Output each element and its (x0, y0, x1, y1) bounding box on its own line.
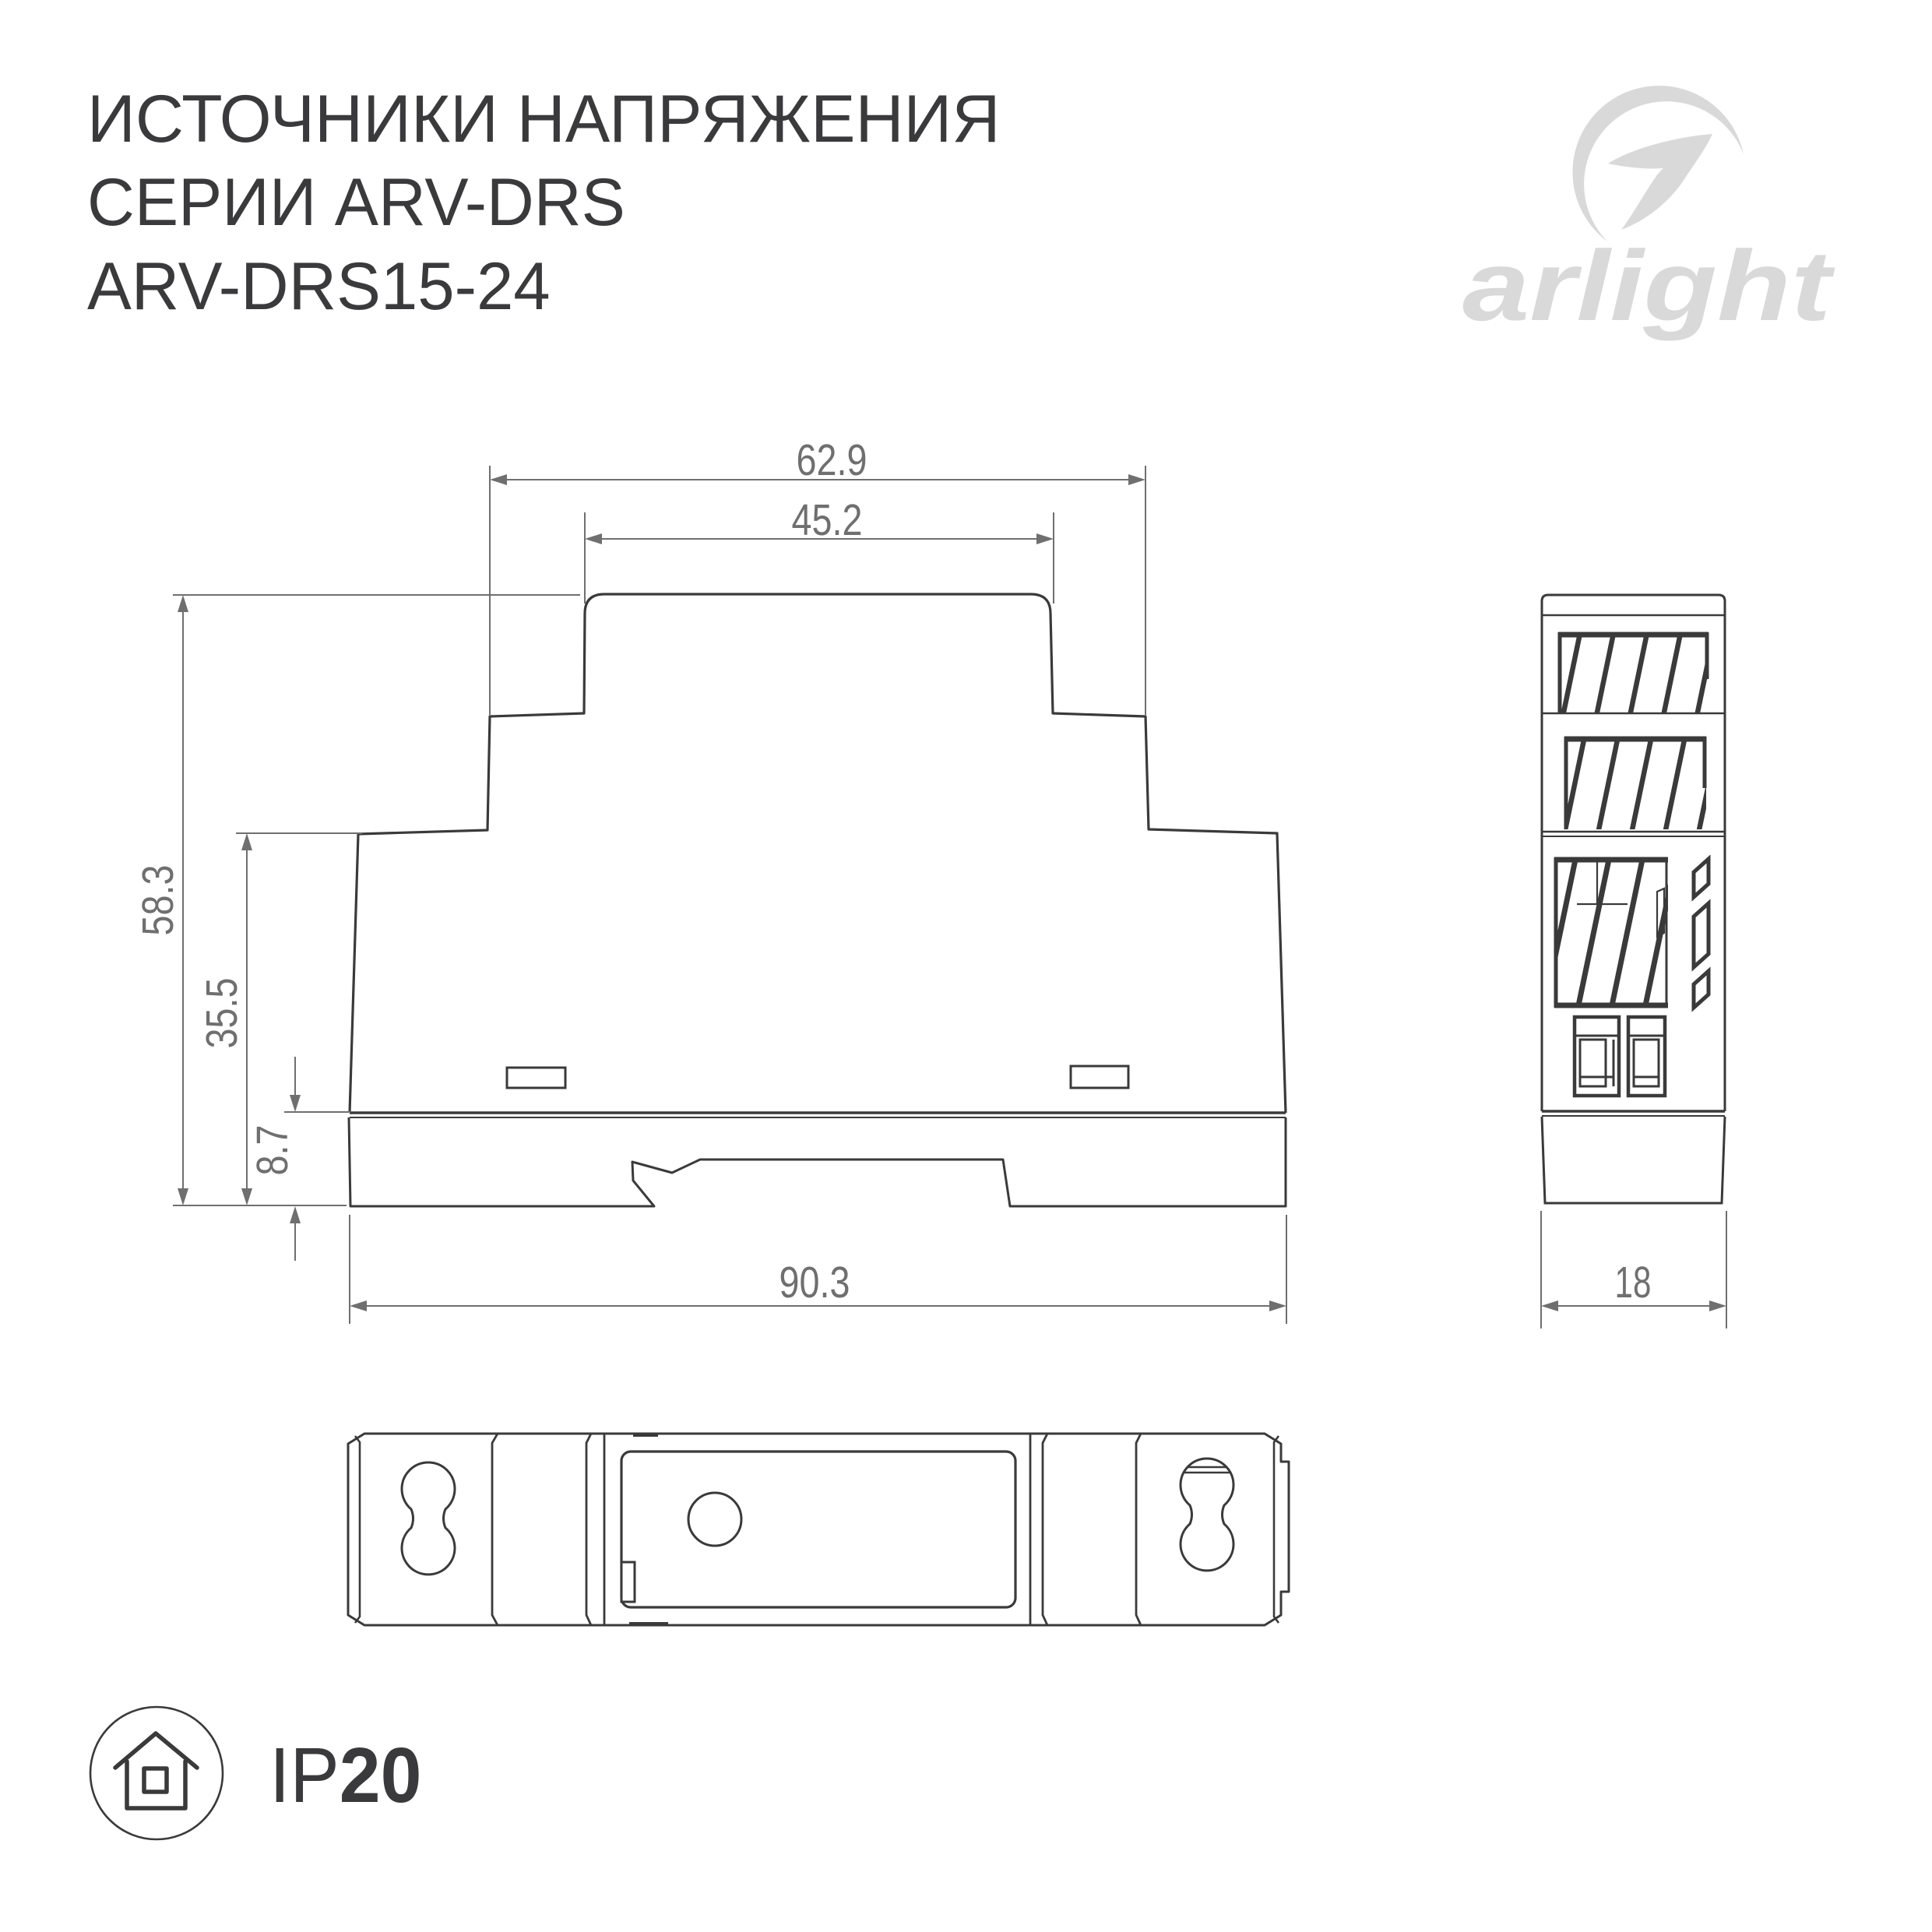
svg-text:СЕРИИ ARV-DRS: СЕРИИ ARV-DRS (87, 165, 625, 240)
svg-text:8.7: 8.7 (248, 1125, 297, 1176)
svg-text:arlight: arlight (1462, 231, 1835, 342)
svg-text:35.5: 35.5 (198, 978, 247, 1049)
svg-text:18: 18 (1615, 1258, 1652, 1307)
svg-text:90.3: 90.3 (779, 1258, 850, 1307)
svg-text:ARV-DRS15-24: ARV-DRS15-24 (87, 250, 551, 324)
svg-text:IP20: IP20 (269, 1732, 421, 1819)
svg-text:58.3: 58.3 (134, 865, 183, 936)
svg-text:ИСТОЧНИКИ НАПРЯЖЕНИЯ: ИСТОЧНИКИ НАПРЯЖЕНИЯ (87, 82, 1000, 157)
svg-text:62.9: 62.9 (797, 436, 867, 485)
svg-text:45.2: 45.2 (792, 496, 863, 545)
